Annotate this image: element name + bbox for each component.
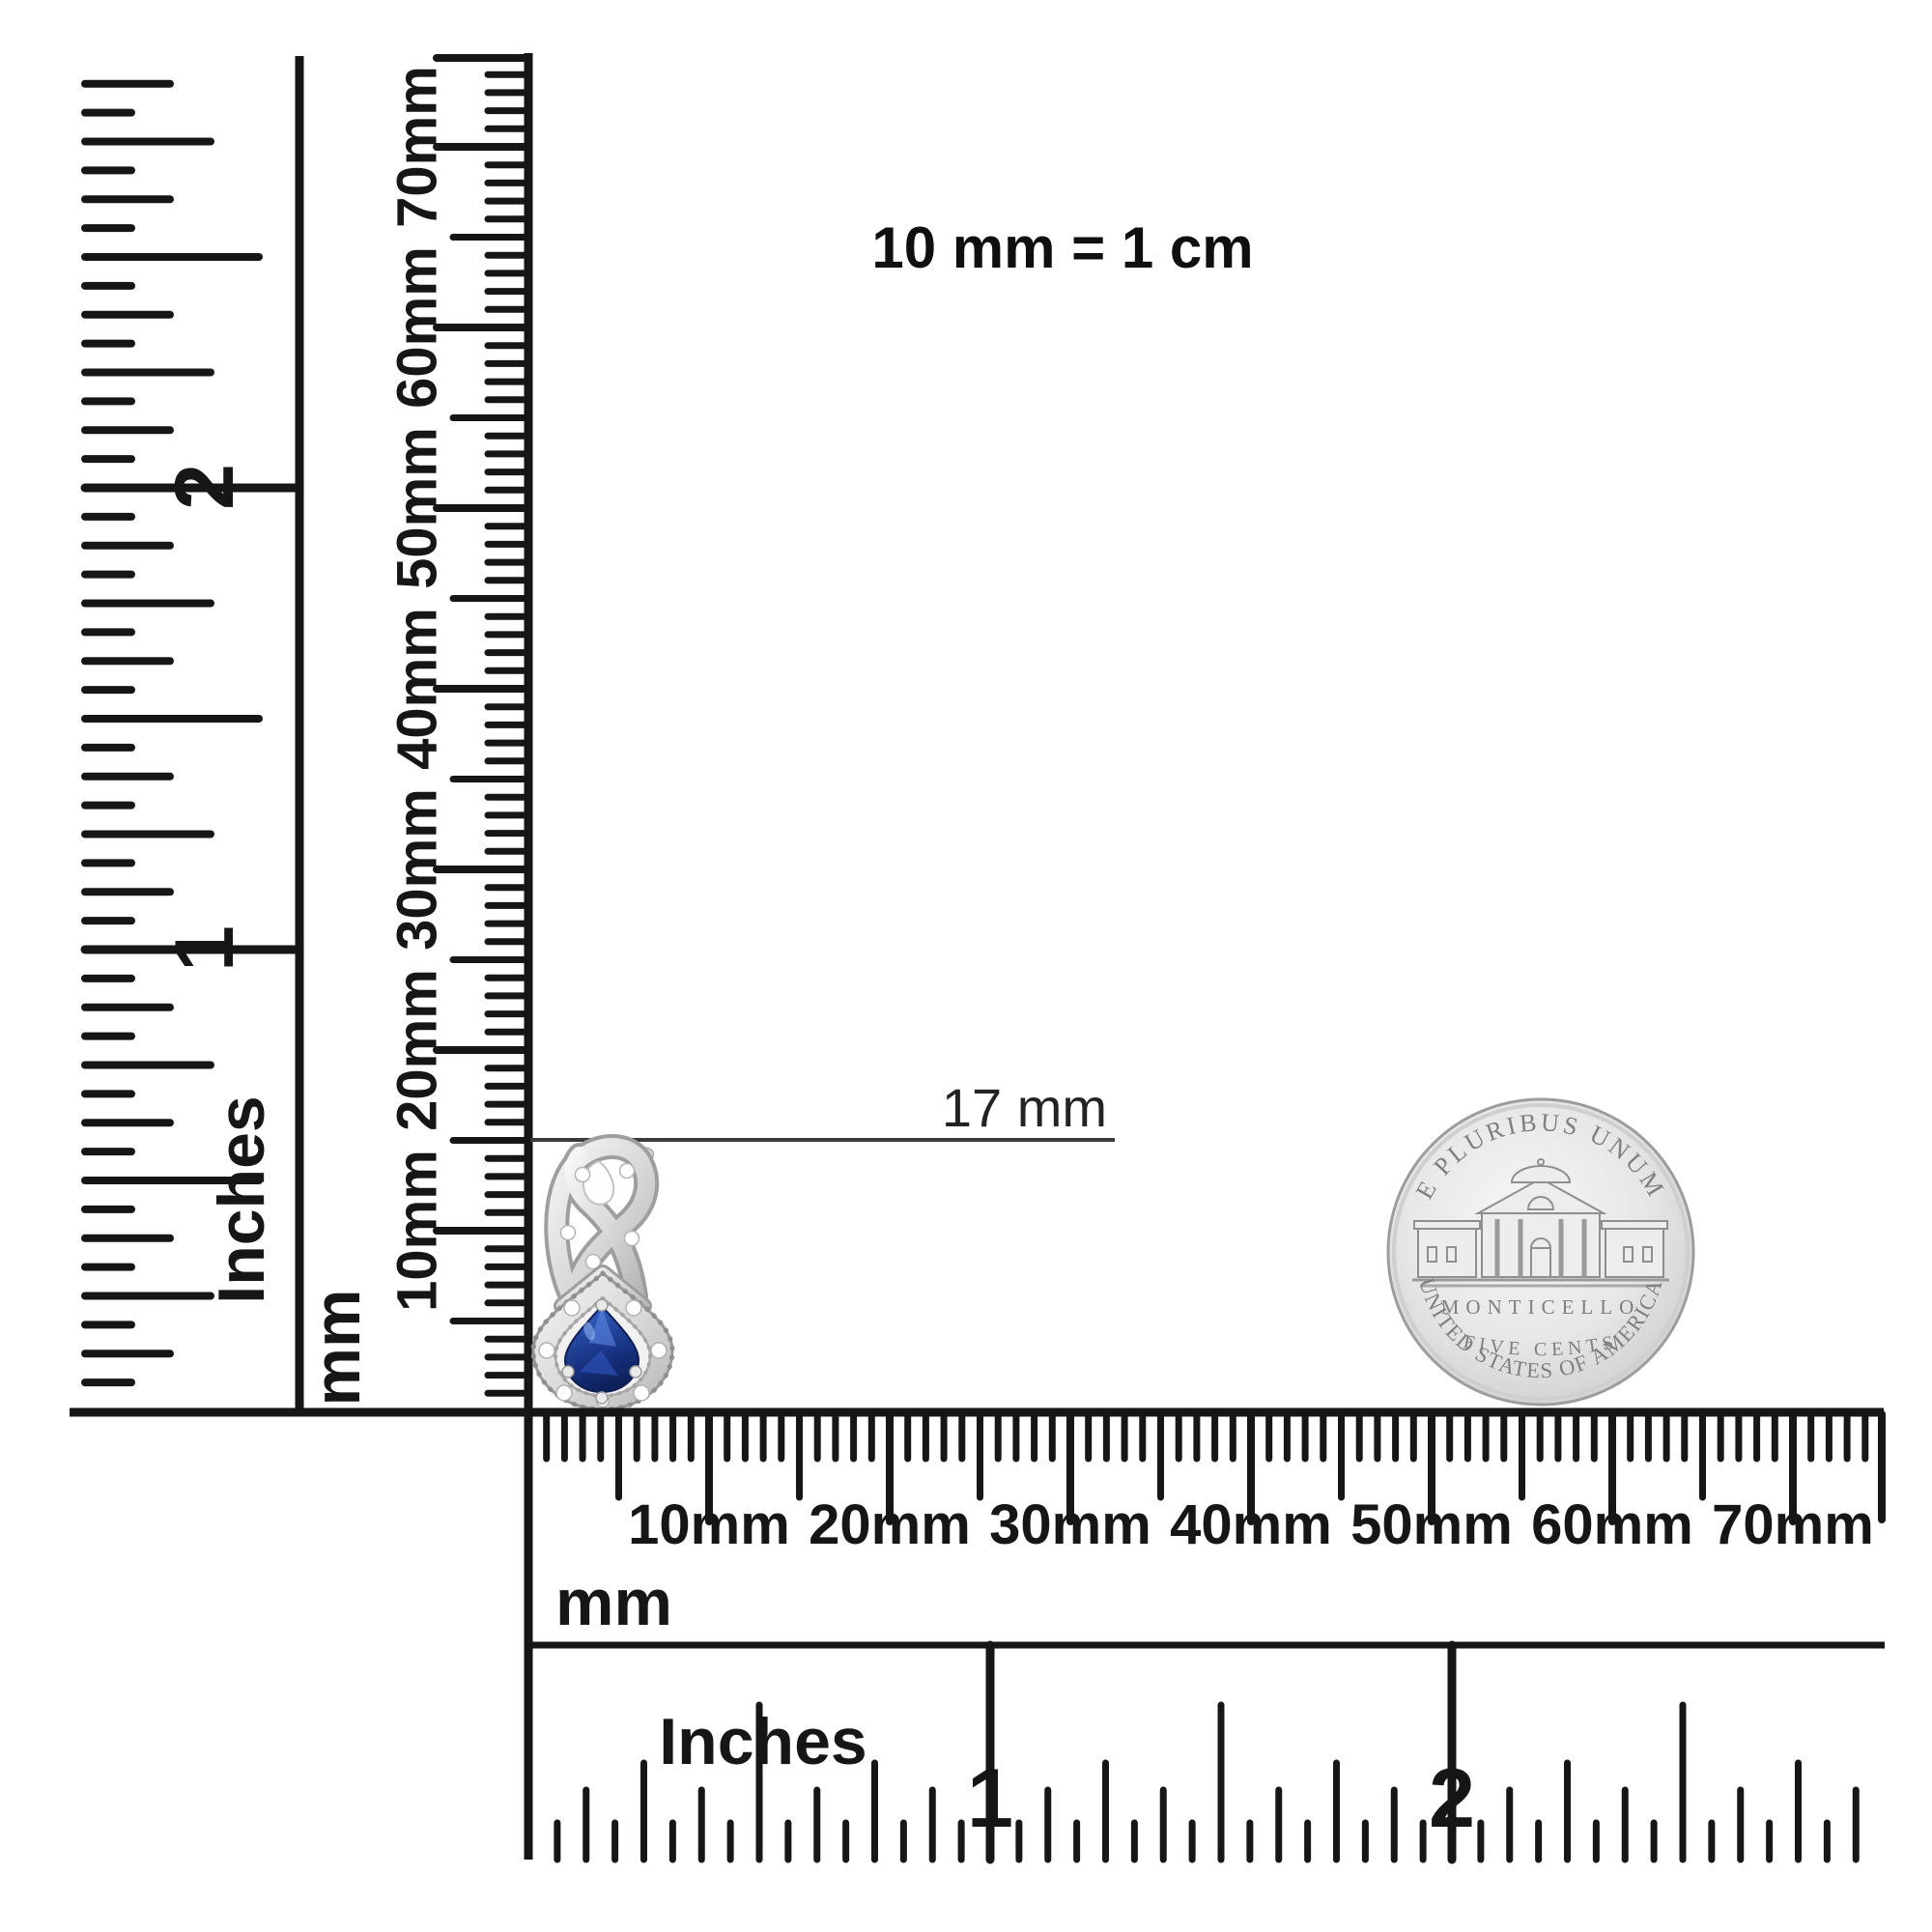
horizontal-mm-tick-label: 40mm: [1170, 1493, 1332, 1556]
vertical-mm-tick-label: 20mm: [386, 969, 449, 1131]
horizontal-mm-unit-label: mm: [555, 1566, 672, 1639]
vertical-mm-tick-label: 30mm: [386, 788, 449, 951]
coin-building-label: MONTICELLO: [1441, 1295, 1640, 1319]
mm-tick-labels: 10mm20mm30mm40mm50mm60mm70mm: [386, 66, 449, 1312]
horizontal-mm-tick-label: 60mm: [1531, 1493, 1693, 1556]
mm-tick-labels: 10mm20mm30mm40mm50mm60mm70mm: [628, 1493, 1874, 1556]
vertical-mm-tick-label: 40mm: [386, 608, 449, 770]
measurement-label: 17 mm: [942, 1077, 1107, 1138]
size-guide-image: 10 mm = 1 cm 1 2 Inches 10mm20mm30mm40mm…: [0, 0, 1932, 1932]
vertical-inches-unit-label: Inches: [205, 1095, 278, 1303]
unit-equivalence-note: 10 mm = 1 cm: [871, 215, 1253, 280]
horizontal-inches-unit-label: Inches: [659, 1705, 867, 1778]
vertical-mm-unit-label: mm: [300, 1290, 374, 1406]
vertical-mm-tick-label: 50mm: [386, 427, 449, 589]
vertical-mm-tick-label: 60mm: [386, 246, 449, 409]
horizontal-mm-tick-label: 10mm: [628, 1493, 790, 1556]
vertical-inch-label-1: 1: [158, 925, 251, 972]
nickel-coin: E PLURIBUS UNUM MONTICELLO FIVE CENTS UN…: [1388, 1099, 1693, 1405]
horizontal-inch-label-1: 1: [967, 1752, 1013, 1845]
horizontal-inch-label-2: 2: [1429, 1752, 1475, 1845]
vertical-mm-tick-label: 10mm: [386, 1150, 449, 1312]
horizontal-mm-tick-label: 30mm: [989, 1493, 1151, 1556]
vertical-mm-tick-label: 70mm: [386, 66, 449, 228]
vertical-inch-label-2: 2: [158, 464, 251, 510]
horizontal-mm-tick-label: 20mm: [809, 1493, 971, 1556]
horizontal-mm-tick-label: 70mm: [1712, 1493, 1874, 1556]
horizontal-mm-tick-label: 50mm: [1350, 1493, 1513, 1556]
